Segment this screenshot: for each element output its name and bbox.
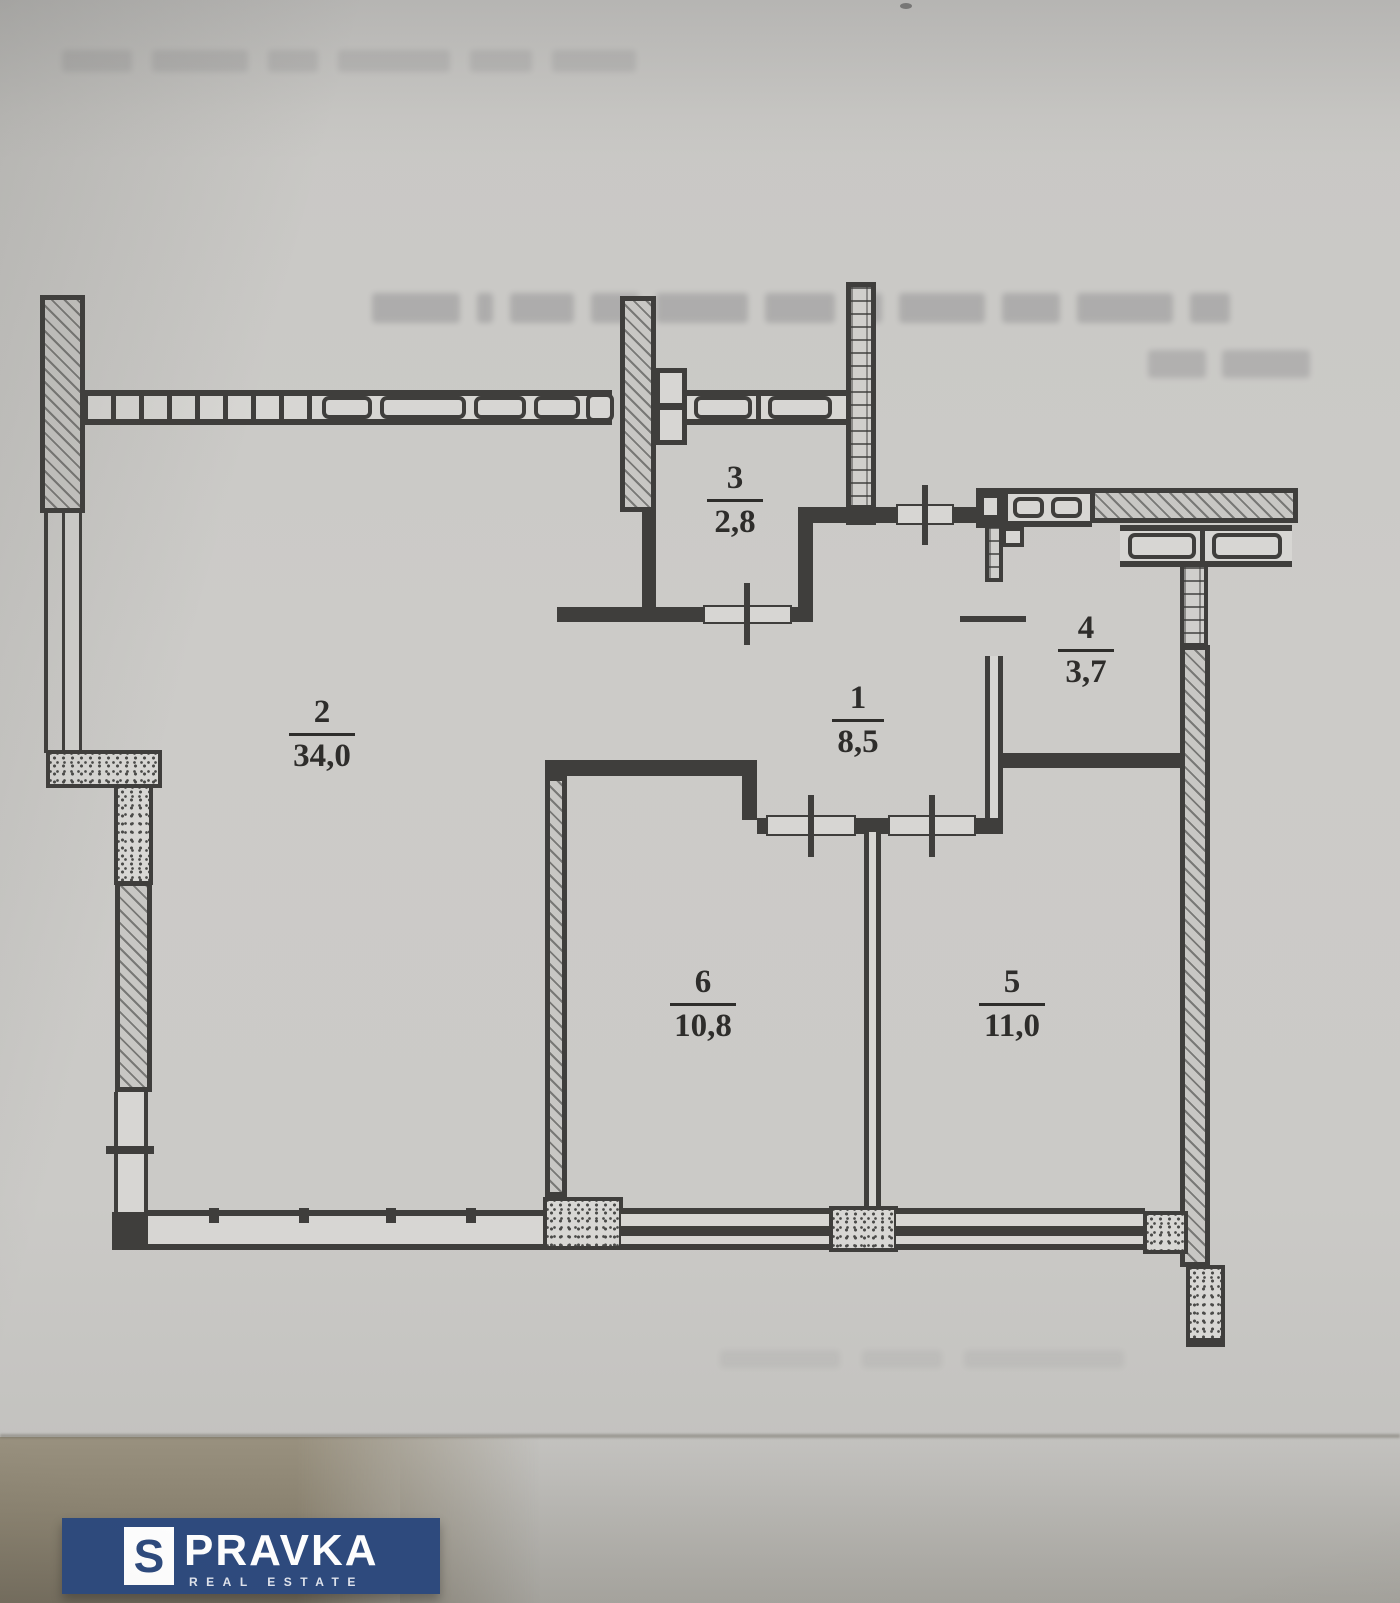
scanned-floor-plan-photo: 1 8,5 2 34,0 3 2,8 4 3,7 5 11,0 6 10,8 S… — [0, 0, 1400, 1603]
window-left-hatched — [115, 881, 152, 1092]
window-nub — [209, 1208, 219, 1223]
window-band-bottom-left — [148, 1210, 545, 1250]
wall-hall-bottom — [974, 818, 1003, 834]
window-pane — [694, 396, 752, 419]
window-mullion — [1200, 530, 1205, 562]
window-band-mid-line — [896, 1226, 1145, 1236]
room-label-5: 5 11,0 — [962, 966, 1062, 1043]
window-connector-block — [1002, 527, 1024, 547]
wall-room3-left — [642, 512, 656, 612]
wall-room6-left — [545, 776, 567, 1197]
window-pane — [1051, 497, 1082, 518]
window-pane — [586, 393, 614, 422]
room-area: 34,0 — [272, 740, 372, 773]
window-pane — [534, 396, 580, 419]
room-area: 10,8 — [653, 1010, 753, 1043]
room-number: 1 — [808, 682, 908, 715]
wall-pier-mid — [620, 296, 656, 512]
window-connector-block — [655, 368, 687, 408]
bleed-through-text-row2 — [372, 293, 1230, 323]
window-mullion — [756, 393, 761, 422]
wall-block-bottom — [829, 1206, 898, 1252]
fraction-bar — [670, 1003, 736, 1006]
wall-pier-top-left — [40, 295, 85, 513]
window-pane — [380, 396, 466, 419]
window-pane — [1212, 533, 1282, 559]
window-tick — [106, 1146, 154, 1154]
wall-right-hatched — [1180, 645, 1210, 1267]
paper-speck — [900, 3, 912, 9]
room-number: 6 — [653, 966, 753, 999]
wall-block-left — [46, 750, 162, 788]
spravka-watermark-banner: S PRAVKA REAL ESTATE — [62, 1518, 440, 1594]
balcony-edge-line — [44, 513, 48, 753]
room-number: 3 — [685, 462, 785, 495]
balcony-glazing — [62, 513, 82, 753]
door-tick — [960, 616, 1026, 622]
room-number: 5 — [962, 966, 1062, 999]
fraction-bar — [289, 733, 355, 736]
window-nub — [466, 1208, 476, 1223]
room-label-1: 1 8,5 — [808, 682, 908, 759]
bleed-through-text-row4 — [720, 1350, 1124, 1368]
wall-right-brick — [1180, 563, 1208, 647]
spravka-logo-letter: S — [134, 1533, 165, 1579]
wall-jog — [742, 774, 757, 820]
window-pane — [1013, 497, 1044, 518]
window-pane — [322, 396, 372, 419]
room-number: 2 — [272, 696, 372, 729]
paper-edge — [0, 1434, 1400, 1438]
door-tick — [808, 795, 814, 857]
wall-block-left — [114, 784, 153, 885]
fraction-bar — [979, 1003, 1045, 1006]
room-area: 8,5 — [808, 726, 908, 759]
wall-corridor-top — [798, 507, 898, 523]
room-label-4: 4 3,7 — [1036, 612, 1136, 689]
bleed-through-text-row3 — [1148, 350, 1310, 378]
door-tick — [922, 485, 928, 545]
wall-room3-bottom — [557, 607, 707, 622]
wall-block-bottom — [543, 1197, 623, 1250]
window-nub — [299, 1208, 309, 1223]
wall-partition-1-4 — [985, 523, 1003, 582]
room-area: 11,0 — [962, 1010, 1062, 1043]
door-tick — [744, 583, 750, 645]
spravka-logo-icon: S — [124, 1527, 174, 1585]
wall-block-bottom — [1143, 1211, 1188, 1254]
room-number: 4 — [1036, 612, 1136, 645]
window-pane — [768, 396, 832, 419]
wall-pier-brick — [846, 282, 876, 510]
room-label-6: 6 10,8 — [653, 966, 753, 1043]
wall-partition-1-4 — [985, 656, 1003, 832]
window-connector-block — [655, 405, 687, 445]
window-nub — [386, 1208, 396, 1223]
bleed-through-text-row1 — [62, 50, 636, 72]
room-label-2: 2 34,0 — [272, 696, 372, 773]
room-area: 3,7 — [1036, 656, 1136, 689]
wall-top-right-hatched — [1090, 488, 1298, 523]
corner-block-bottom-left — [112, 1212, 150, 1250]
window-pane — [1128, 533, 1196, 559]
table-shadow — [400, 1437, 1400, 1603]
corner-block-inner — [984, 498, 997, 515]
window-band-top-left — [83, 390, 315, 425]
wall-right-stub — [1186, 1265, 1225, 1347]
window-band-mid-line — [621, 1226, 831, 1236]
room-area: 2,8 — [685, 506, 785, 539]
wall-4-5 — [1003, 753, 1180, 768]
wall-corridor-left-vert — [798, 507, 813, 622]
wall-room6-top — [545, 760, 757, 776]
room-label-3: 3 2,8 — [685, 462, 785, 539]
fraction-bar — [832, 719, 884, 722]
fraction-bar — [1058, 649, 1114, 652]
watermark-tagline: REAL ESTATE — [189, 1575, 364, 1589]
fraction-bar — [707, 499, 763, 502]
door-tick — [929, 795, 935, 857]
wall-divider-6-5 — [864, 832, 881, 1210]
watermark-brand-text: PRAVKA — [184, 1526, 379, 1576]
window-pane — [474, 396, 526, 419]
